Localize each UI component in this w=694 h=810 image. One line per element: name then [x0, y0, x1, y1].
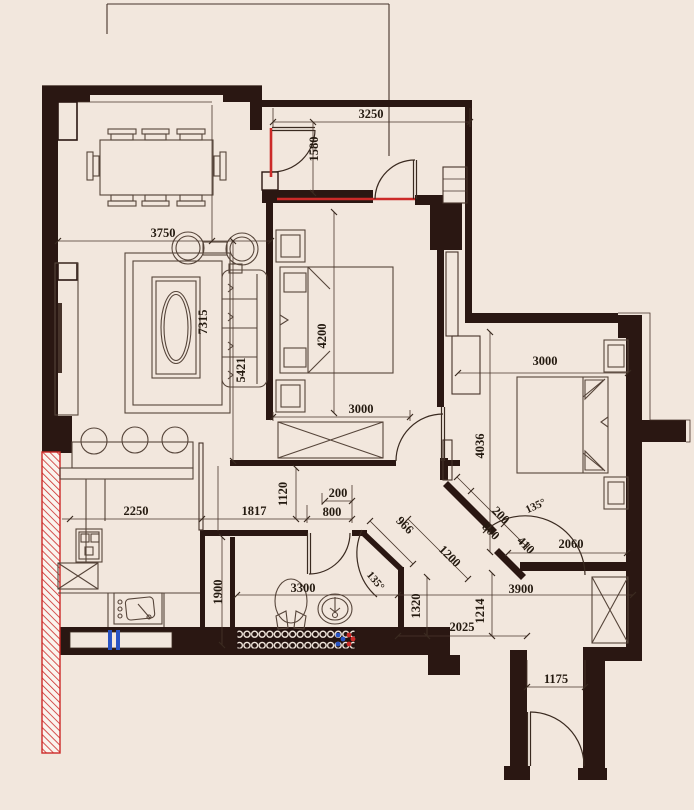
floor-plan-svg: 3250 1580 3750 7315 5421 4200 3000 2250 … — [0, 0, 694, 810]
dim-1175: 1175 — [544, 672, 568, 686]
floor-plan-page: 3250 1580 3750 7315 5421 4200 3000 2250 … — [0, 0, 694, 810]
dim-3900: 3900 — [509, 582, 534, 596]
dim-3250: 3250 — [359, 107, 384, 121]
hatched-wall — [42, 452, 60, 753]
dim-2060: 2060 — [559, 537, 584, 551]
dim-5421: 5421 — [234, 358, 248, 383]
dim-3000-bed1: 3000 — [349, 402, 374, 416]
dim-800-bath: 800 — [323, 505, 342, 519]
dim-1580: 1580 — [307, 137, 321, 162]
dim-1900: 1900 — [211, 580, 225, 605]
dim-4036: 4036 — [473, 434, 487, 459]
dim-3000-bed2: 3000 — [533, 354, 558, 368]
dim-1320: 1320 — [409, 594, 423, 619]
dim-1817: 1817 — [242, 504, 267, 518]
dim-2250: 2250 — [124, 504, 149, 518]
dim-3300: 3300 — [291, 581, 316, 595]
dim-3750: 3750 — [151, 226, 176, 240]
dim-200-bath: 200 — [329, 486, 348, 500]
dim-2025: 2025 — [450, 620, 475, 634]
mosaic-tile-strip — [237, 629, 355, 649]
dim-4200: 4200 — [315, 324, 329, 349]
dim-1120: 1120 — [276, 482, 290, 506]
dim-7315: 7315 — [196, 310, 210, 335]
kitchen-window — [70, 630, 172, 650]
dim-1214: 1214 — [473, 598, 487, 624]
